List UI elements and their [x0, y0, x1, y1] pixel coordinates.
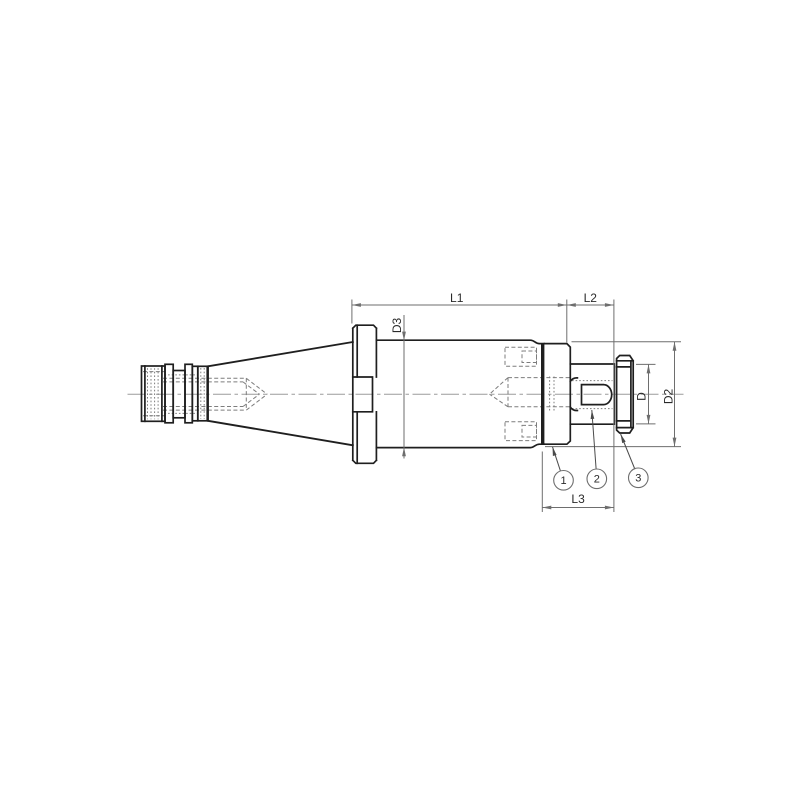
- relief-thread-hatch: [201, 368, 204, 419]
- balloon-1-arrow: [553, 447, 557, 456]
- d-arrow-top: [647, 364, 651, 373]
- balloon-1: 1: [553, 447, 574, 490]
- l2-arrow-left: [567, 303, 576, 307]
- d-arrow-bottom: [647, 415, 651, 424]
- collar-ring-1: [165, 364, 173, 423]
- drive-slot-bottom-outer: [505, 422, 537, 441]
- d3-arrow-bottom: [402, 447, 406, 456]
- collar-ring-2: [185, 364, 192, 423]
- drive-slot-top-inner: [522, 351, 537, 363]
- d2-label: D2: [662, 389, 676, 405]
- l3-label: L3: [571, 492, 585, 506]
- l1-extension-lines: [352, 300, 567, 343]
- balloon-2-number: 2: [594, 474, 600, 486]
- technical-drawing-canvas: L1 L2 L3 D3 D D2: [0, 0, 800, 800]
- d2-arrow-bottom: [673, 438, 677, 447]
- l2-arrow-right: [605, 303, 614, 307]
- d-label: D: [635, 392, 649, 401]
- balloon-1-number: 1: [560, 475, 566, 487]
- l1-label: L1: [450, 291, 464, 305]
- body-bore-dashed: [490, 378, 571, 407]
- d2-arrow-top: [673, 342, 677, 351]
- balloon-3-arrow: [621, 434, 626, 443]
- l3-arrow-left: [542, 506, 551, 510]
- l3-arrow-right: [605, 506, 614, 510]
- balloon-2-arrow: [591, 410, 595, 419]
- taper-cone-edges: [208, 342, 353, 445]
- l1-arrow-left: [352, 303, 361, 307]
- balloon-2: 2: [587, 410, 607, 489]
- drive-slot-top-outer: [505, 347, 537, 366]
- drive-slot-bottom-inner: [522, 425, 537, 437]
- d3-label: D3: [390, 318, 404, 334]
- dimension-l1: L1: [352, 291, 614, 343]
- body-top-edge: [376, 340, 544, 343]
- dimension-d3: D3: [390, 315, 406, 459]
- balloon-3-number: 3: [635, 473, 641, 485]
- balloon-3: 3: [621, 434, 649, 488]
- l2-label: L2: [584, 291, 598, 305]
- l1-arrow-right: [558, 303, 567, 307]
- body-bottom-edge: [376, 444, 544, 447]
